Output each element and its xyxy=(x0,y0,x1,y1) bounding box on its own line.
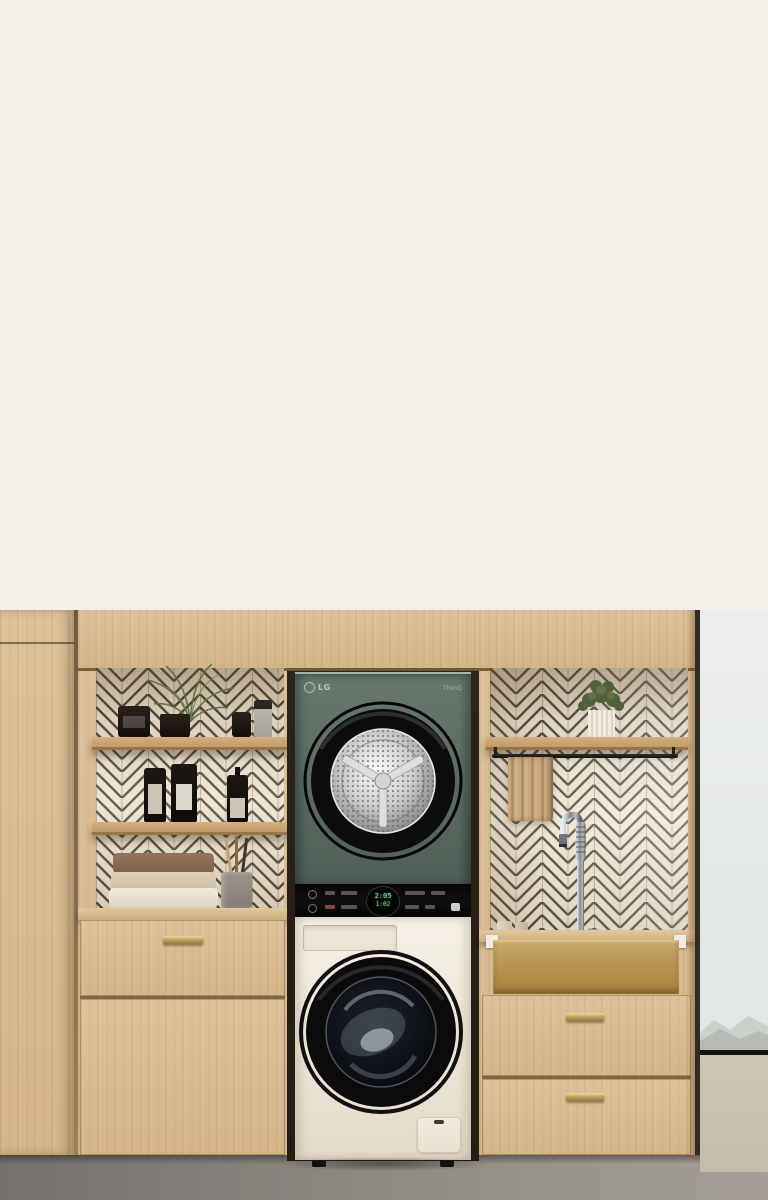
control-icons xyxy=(341,905,357,909)
shelf-right xyxy=(486,737,688,750)
brush-2 xyxy=(235,836,238,874)
upper-cabinet-center xyxy=(287,610,479,671)
bottle-dark-1 xyxy=(144,768,166,822)
dryer-door xyxy=(301,699,465,863)
display-time-bottom: 1:02 xyxy=(367,901,399,908)
window xyxy=(700,610,768,1172)
control-icons xyxy=(431,891,445,895)
jar-dark xyxy=(118,706,150,737)
drawer-right-2-handle xyxy=(566,1093,604,1101)
display-time-top: 2:05 xyxy=(367,892,399,901)
pump-bottle xyxy=(227,775,248,822)
mountains xyxy=(700,993,768,1055)
towel-white xyxy=(109,888,218,908)
thinq-label: ThinQ xyxy=(443,684,462,692)
washer xyxy=(295,917,471,1160)
control-icons xyxy=(425,905,435,909)
control-icons xyxy=(325,905,335,909)
window-frame-gap xyxy=(695,610,700,1155)
bottle-dark-2 xyxy=(171,764,197,822)
start-button xyxy=(451,903,460,911)
drawer-right-2 xyxy=(482,1079,691,1155)
control-display: 2:05 1:02 xyxy=(366,886,400,917)
lg-logo-text: LG xyxy=(318,683,331,692)
lg-logo-icon xyxy=(304,682,315,693)
right-frame-shade xyxy=(686,610,695,1155)
faucet xyxy=(548,810,608,944)
bottle-gray xyxy=(254,700,272,738)
tall-cabinet-left xyxy=(0,610,74,1155)
laundry-room-photo: LG ThinQ xyxy=(0,610,768,1200)
lg-logo: LG xyxy=(304,682,331,693)
drawer-right-1 xyxy=(482,995,691,1076)
jar-small xyxy=(232,712,251,737)
control-icons xyxy=(405,905,419,909)
drawer-left xyxy=(80,920,285,996)
washer-door xyxy=(297,948,465,1116)
brass-sink-apron xyxy=(493,940,679,994)
plant-pot-right xyxy=(588,710,615,738)
power-icon-washer xyxy=(308,904,317,913)
counter-left xyxy=(78,908,287,920)
service-panel xyxy=(417,1117,461,1153)
blank-header xyxy=(0,0,768,610)
drawer-left-handle xyxy=(163,936,203,944)
cabinet-door-left xyxy=(80,999,285,1155)
power-icon-dryer xyxy=(308,890,317,899)
shelf-lower-left xyxy=(92,822,288,835)
hanging-towel xyxy=(508,757,553,821)
control-icons xyxy=(325,891,335,895)
washtower-floor-shadow xyxy=(278,1157,490,1171)
upper-cabinet-right xyxy=(479,610,695,671)
fern-pot xyxy=(160,714,190,738)
control-icons xyxy=(405,891,425,895)
drawer-right-1-handle xyxy=(566,1013,604,1021)
brush-cup xyxy=(221,872,252,908)
control-panel: 2:05 1:02 xyxy=(295,884,471,917)
shelf-upper-left xyxy=(92,737,288,750)
towel-brown xyxy=(113,853,214,874)
dryer: LG ThinQ xyxy=(295,672,471,886)
control-icons xyxy=(341,891,357,895)
cabinet-seam xyxy=(0,642,74,644)
stone-ledge xyxy=(700,1055,768,1172)
